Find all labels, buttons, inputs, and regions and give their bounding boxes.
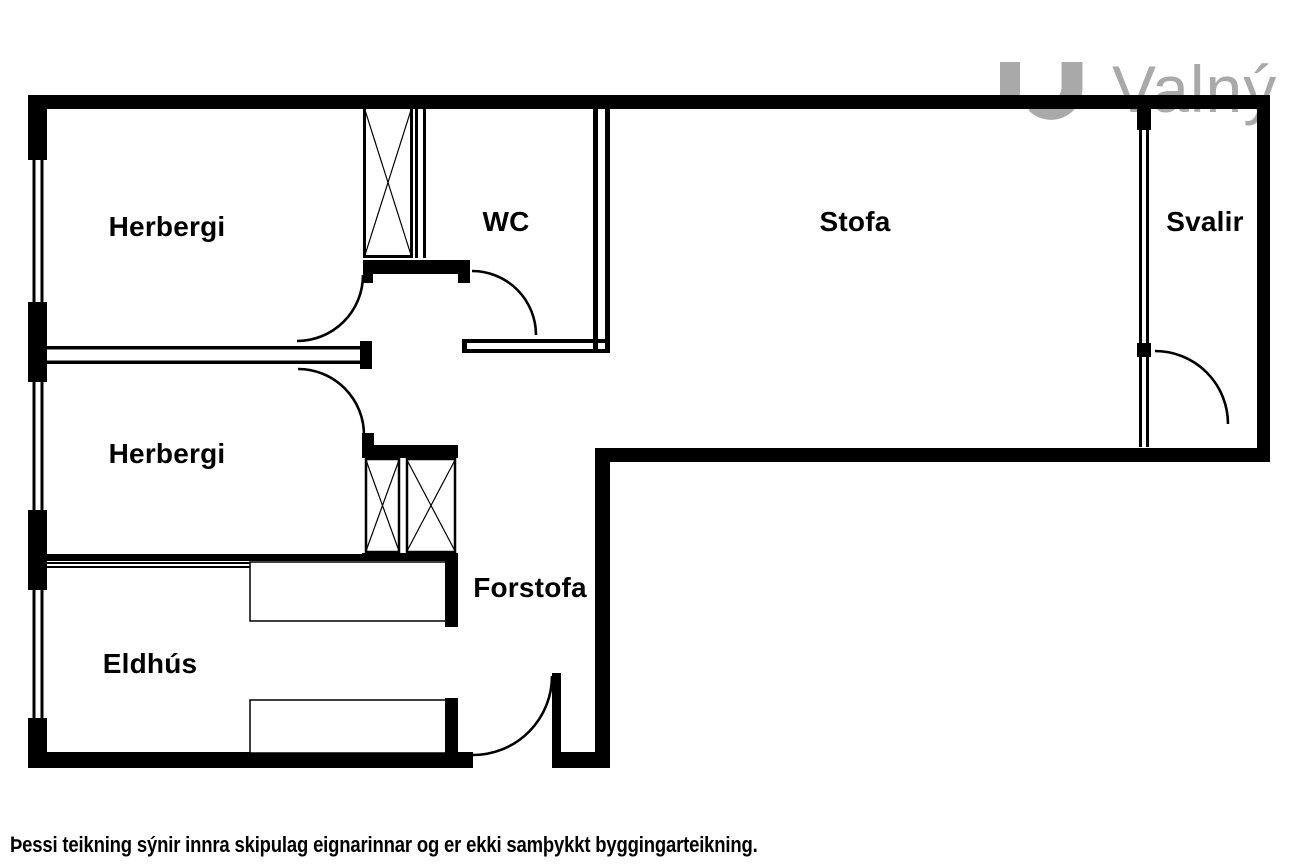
room-label-wc: WC	[482, 206, 529, 238]
floorplan-page: Valný	[0, 0, 1300, 867]
door-arc-svalir	[1155, 351, 1228, 424]
door-arc-herbergi-1	[297, 275, 363, 341]
disclaimer-text: Þessi teikning sýnir innra skipulag eign…	[10, 832, 758, 858]
room-label-forstofa: Forstofa	[473, 572, 587, 604]
floorplan-drawing: Valný	[0, 0, 1300, 867]
kitchen-counters	[250, 555, 458, 757]
valny-logo-text: Valný	[1112, 52, 1277, 126]
partition-walls	[45, 109, 610, 568]
walls	[28, 95, 1270, 768]
room-label-herbergi-2: Herbergi	[109, 438, 226, 470]
entry-door-leaf	[552, 673, 561, 768]
door-arc-wc	[472, 271, 536, 335]
wardrobe-closets	[362, 109, 458, 558]
room-label-stofa: Stofa	[820, 206, 891, 238]
room-label-eldhus: Eldhús	[103, 648, 198, 680]
room-label-herbergi-1: Herbergi	[109, 211, 226, 243]
door-arc-entry	[473, 676, 552, 755]
door-arc-herbergi-2	[298, 369, 364, 435]
room-label-svalir: Svalir	[1166, 206, 1243, 238]
